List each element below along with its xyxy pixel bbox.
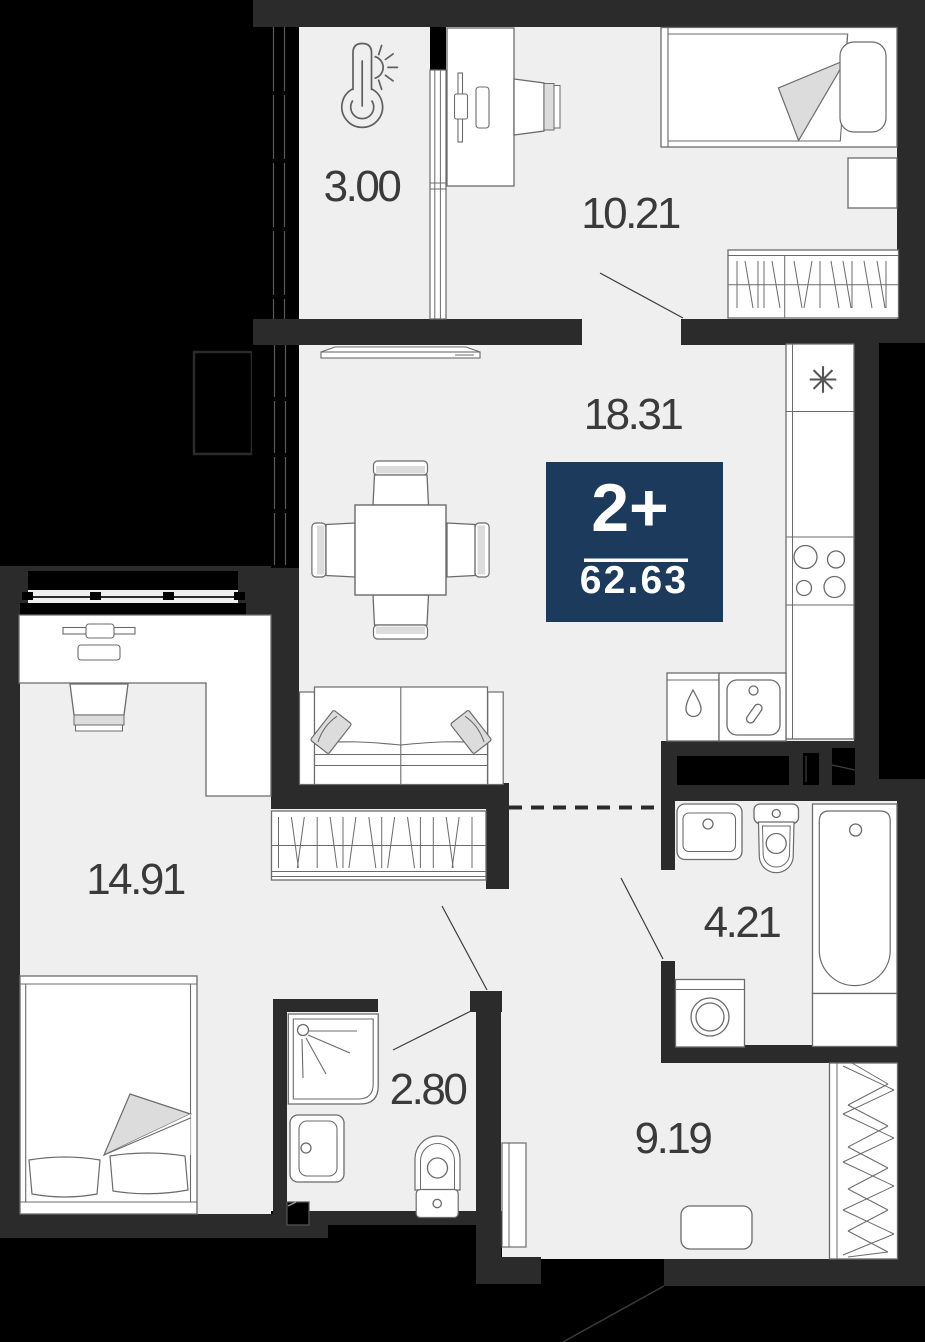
svg-text:2+: 2+ <box>591 470 669 546</box>
svg-text:18.31: 18.31 <box>584 390 683 439</box>
svg-text:4.21: 4.21 <box>704 898 781 947</box>
svg-text:14.91: 14.91 <box>86 855 185 904</box>
svg-text:62.63: 62.63 <box>580 559 689 602</box>
svg-text:2.80: 2.80 <box>390 1065 467 1114</box>
svg-text:9.19: 9.19 <box>635 1114 712 1163</box>
svg-text:10.21: 10.21 <box>581 189 680 238</box>
svg-text:3.00: 3.00 <box>324 162 401 211</box>
